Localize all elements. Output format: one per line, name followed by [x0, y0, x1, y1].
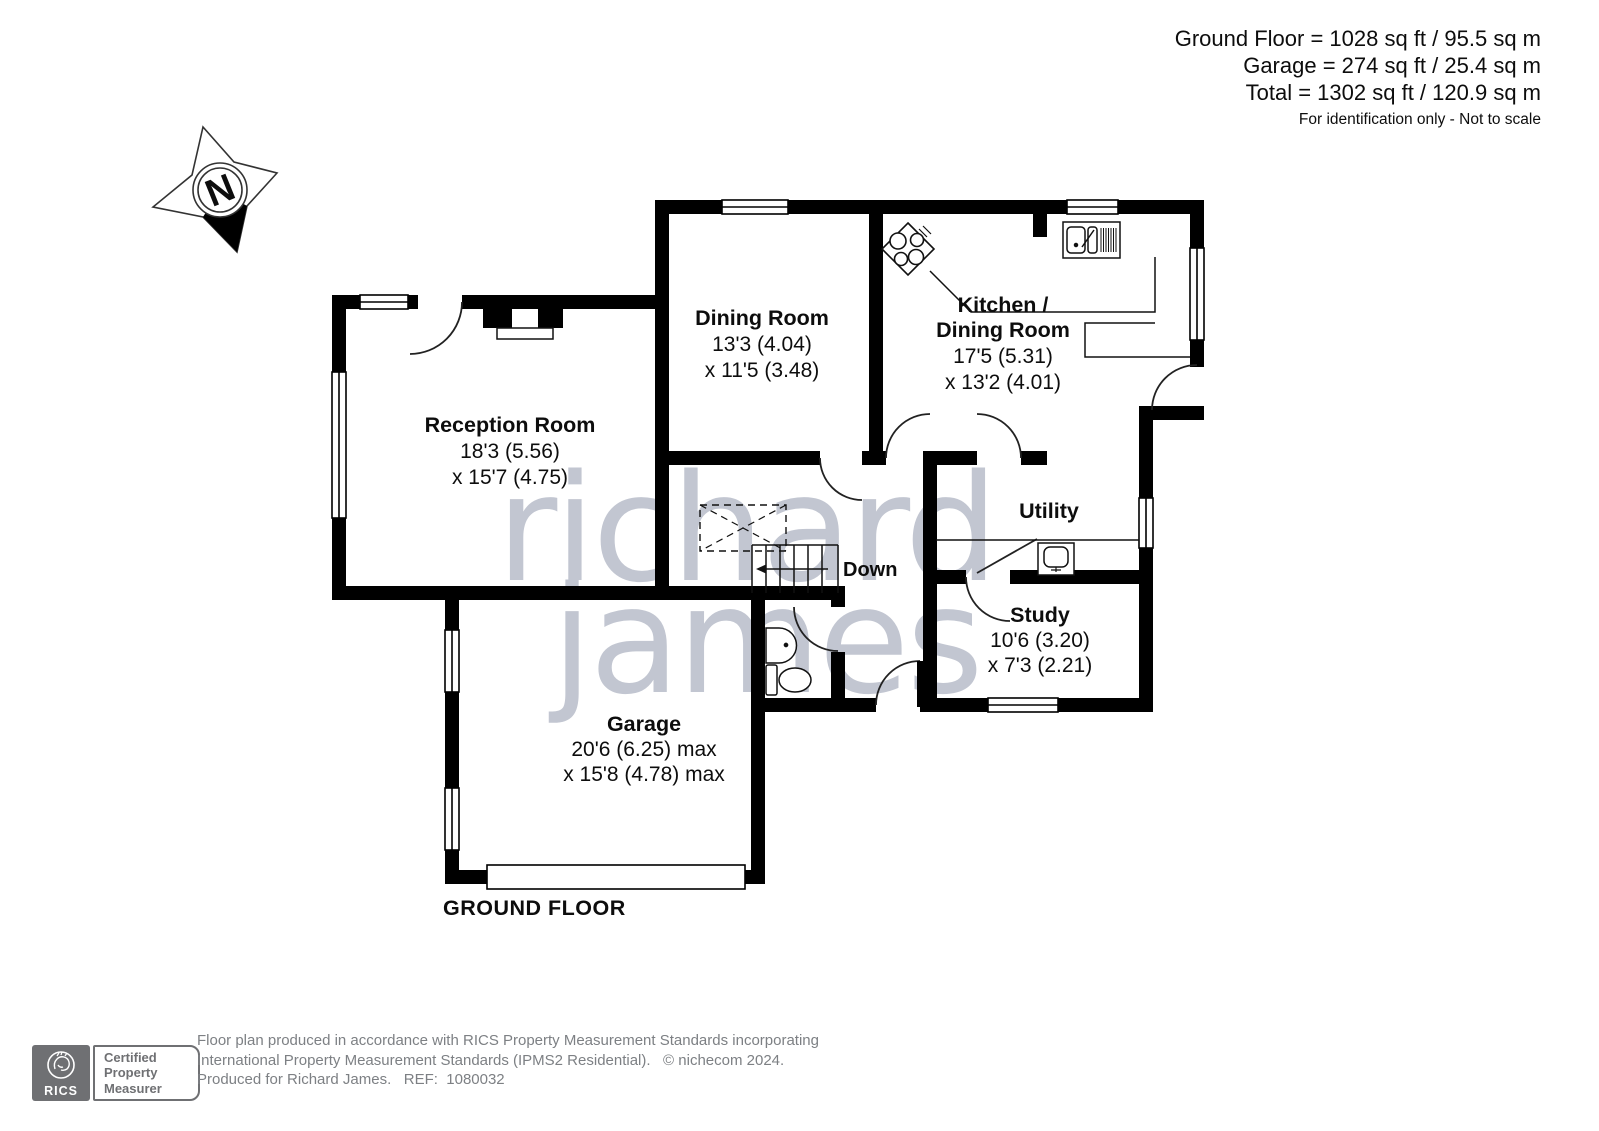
- label-garage-dim2: x 15'8 (4.78) max: [563, 763, 725, 786]
- footer: RICS Certified Property Measurer Floor p…: [0, 1026, 1599, 1126]
- label-garage-name: Garage: [607, 712, 681, 736]
- label-study-name: Study: [1010, 603, 1070, 627]
- floor-title: GROUND FLOOR: [443, 896, 626, 920]
- label-dining-dim2: x 11'5 (3.48): [705, 359, 820, 382]
- label-kitchen-name2: Dining Room: [936, 318, 1070, 342]
- label-garage-dim1: 20'6 (6.25) max: [571, 738, 717, 761]
- certified-property-measurer-badge: Certified Property Measurer: [93, 1045, 200, 1101]
- label-reception-name: Reception Room: [425, 413, 596, 437]
- rics-lion-icon: [32, 1045, 90, 1085]
- label-study-dim1: 10'6 (3.20): [990, 629, 1090, 652]
- disclaimer-line2: International Property Measurement Stand…: [197, 1051, 819, 1071]
- badge-line-measurer: Measurer: [104, 1081, 198, 1097]
- disclaimer-line3: Produced for Richard James. REF: 1080032: [197, 1070, 819, 1090]
- label-dining-dim1: 13'3 (4.04): [712, 333, 812, 356]
- window-kitchen-top: [1067, 200, 1118, 214]
- window-garage-left-upper: [445, 630, 459, 692]
- stat-garage: Garage = 274 sq ft / 25.4 sq m: [1243, 53, 1541, 78]
- window-garage-left-lower: [445, 788, 459, 850]
- label-dining-name: Dining Room: [695, 306, 829, 330]
- door-arc-reception-entrance: [410, 302, 462, 354]
- label-kitchen-dim2: x 13'2 (4.01): [945, 371, 1061, 394]
- fireplace-recess: [512, 309, 538, 328]
- window-study-bottom: [988, 698, 1058, 712]
- garage-door: [487, 865, 745, 889]
- label-study-dim2: x 7'3 (2.21): [988, 654, 1092, 677]
- rics-logo-badge: RICS: [32, 1045, 90, 1101]
- label-utility-name: Utility: [1019, 499, 1079, 523]
- disclaimer-line1: Floor plan produced in accordance with R…: [197, 1031, 819, 1051]
- window-kitchen-right: [1190, 248, 1204, 340]
- stat-ground-floor: Ground Floor = 1028 sq ft / 95.5 sq m: [1175, 26, 1541, 51]
- window-utility-right: [1139, 498, 1153, 548]
- front-door-leaf: [917, 661, 923, 707]
- wc-toilet-icon: [766, 665, 811, 695]
- disclaimer-text: Floor plan produced in accordance with R…: [197, 1031, 819, 1090]
- label-reception-dim2: x 15'7 (4.75): [452, 466, 568, 489]
- window-dining-top: [722, 200, 788, 214]
- hob-icon: [882, 223, 934, 275]
- label-kitchen-name1: Kitchen /: [958, 293, 1049, 317]
- rics-logo-text: RICS: [32, 1084, 90, 1098]
- kitchen-sink-icon: [1063, 222, 1120, 258]
- label-kitchen-dim1: 17'5 (5.31): [953, 345, 1053, 368]
- window-reception-left: [332, 372, 346, 518]
- label-stairs-down: Down: [843, 559, 897, 581]
- label-reception-dim1: 18'3 (5.56): [460, 440, 560, 463]
- stat-note: For identification only - Not to scale: [1299, 111, 1541, 128]
- utility-sink-icon: [1038, 543, 1074, 575]
- floorplan-page: richard james N: [0, 0, 1599, 1131]
- compass-icon: N: [153, 127, 277, 252]
- area-stats: Ground Floor = 1028 sq ft / 95.5 sq m Ga…: [1175, 26, 1541, 128]
- badge-line-property: Property: [104, 1065, 198, 1081]
- stat-total: Total = 1302 sq ft / 120.9 sq m: [1246, 80, 1541, 105]
- floor-plan-svg: richard james N: [0, 0, 1599, 1131]
- wc-basin-icon: [766, 628, 797, 663]
- door-arc-kitchen-back-door: [1152, 365, 1197, 410]
- badge-line-certified: Certified: [104, 1050, 198, 1066]
- hearth: [497, 328, 553, 339]
- window-reception-top: [360, 295, 408, 309]
